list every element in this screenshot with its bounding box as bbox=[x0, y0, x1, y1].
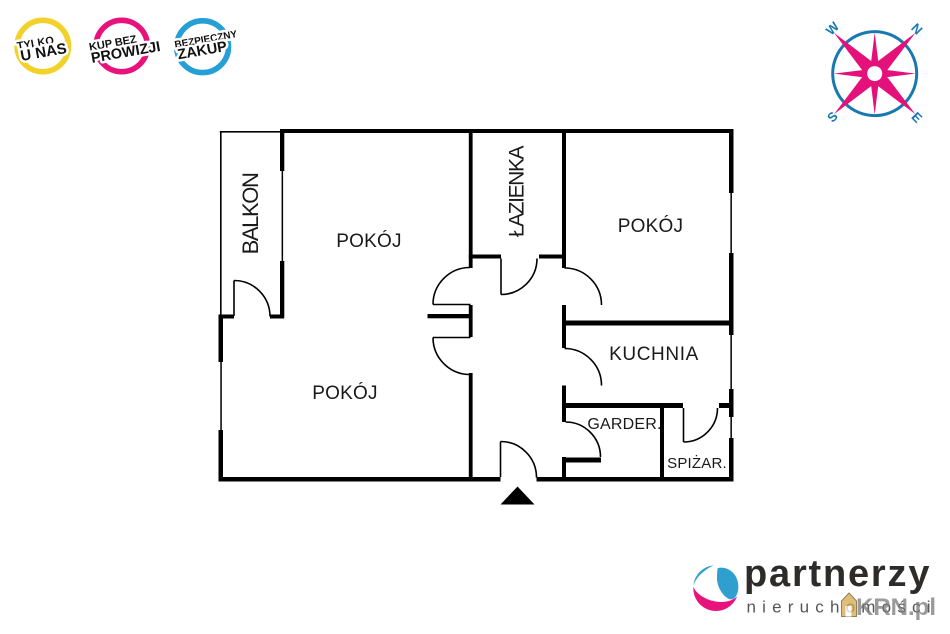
svg-text:N: N bbox=[908, 20, 925, 37]
svg-text:KRN.pl: KRN.pl bbox=[856, 594, 936, 621]
svg-text:POKÓJ: POKÓJ bbox=[618, 215, 683, 237]
svg-text:GARDER.: GARDER. bbox=[587, 416, 661, 433]
svg-text:KUCHNIA: KUCHNIA bbox=[609, 344, 699, 365]
svg-text:E: E bbox=[909, 109, 926, 126]
svg-text:POKÓJ: POKÓJ bbox=[312, 382, 377, 404]
svg-text:ŁAZIENKA: ŁAZIENKA bbox=[506, 145, 529, 237]
svg-text:SPIŻAR.: SPIŻAR. bbox=[667, 454, 727, 472]
svg-text:W: W bbox=[823, 18, 843, 38]
svg-text:BALKON: BALKON bbox=[238, 173, 263, 254]
svg-text:partnerzy: partnerzy bbox=[744, 553, 931, 595]
svg-text:POKÓJ: POKÓJ bbox=[336, 230, 401, 252]
